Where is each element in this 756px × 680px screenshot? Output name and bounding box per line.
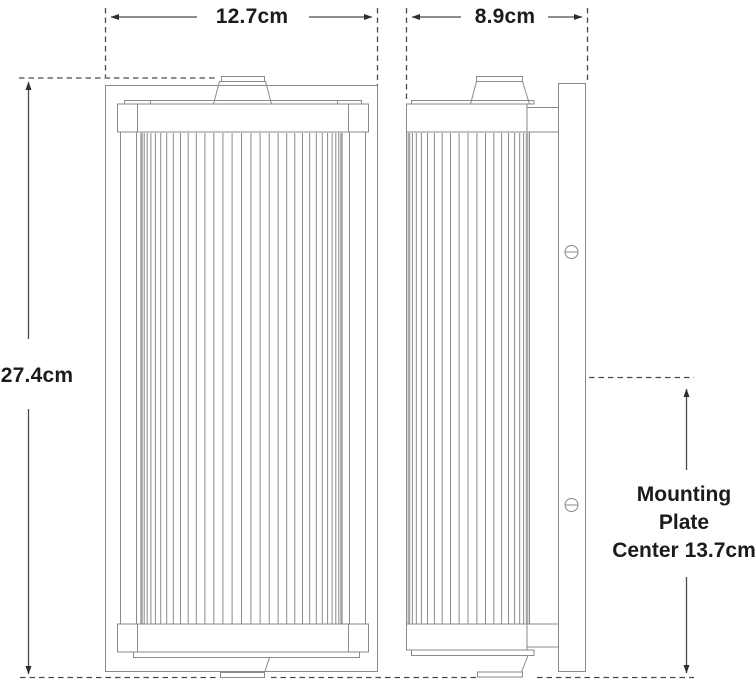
diagram-drawing — [0, 0, 756, 680]
mounting-label-line-1: Mounting — [612, 481, 756, 509]
front-ribbed-glass — [141, 133, 342, 624]
mounting-label-line-2: Plate — [612, 509, 756, 537]
side-ribbed-glass — [408, 133, 528, 624]
front-bottom-cap-bar — [118, 624, 369, 652]
side-bottom-mounting-arm — [527, 624, 559, 647]
side-depth-dimension-label: 8.9cm — [471, 5, 540, 29]
side-view — [407, 77, 586, 678]
side-bottom-knob-lip — [478, 672, 523, 677]
side-top-cap-bar — [407, 104, 528, 132]
mounting-plate-center-label: Mounting Plate Center 13.7cm — [612, 481, 756, 565]
side-top-knob-lip — [477, 77, 523, 82]
front-top-cap-lip — [125, 101, 362, 105]
front-width-dimension-label: 12.7cm — [212, 5, 292, 29]
front-bottom-cap-lip — [134, 652, 360, 658]
front-bottom-knob — [216, 658, 270, 673]
front-top-cap-bar — [118, 104, 369, 132]
mounting-plate — [559, 84, 586, 672]
slotted-screw-icon — [565, 246, 578, 259]
height-dimension-label: 27.4cm — [1, 364, 73, 388]
side-top-cap-lip — [412, 101, 535, 105]
side-bottom-cap-bar — [407, 624, 528, 650]
mounting-label-line-3: Center 13.7cm — [612, 537, 756, 565]
side-top-mounting-arm — [527, 108, 559, 133]
slotted-screw-icon — [565, 499, 578, 512]
front-bottom-knob-lip — [221, 673, 265, 678]
side-bottom-cap-lip — [412, 650, 535, 656]
side-bottom-knob — [471, 656, 528, 673]
sconce-dimension-diagram: 12.7cm 8.9cm 27.4cm Mounting Plate Cente… — [0, 0, 756, 680]
front-top-knob-lip — [222, 77, 265, 82]
front-view — [106, 77, 378, 678]
